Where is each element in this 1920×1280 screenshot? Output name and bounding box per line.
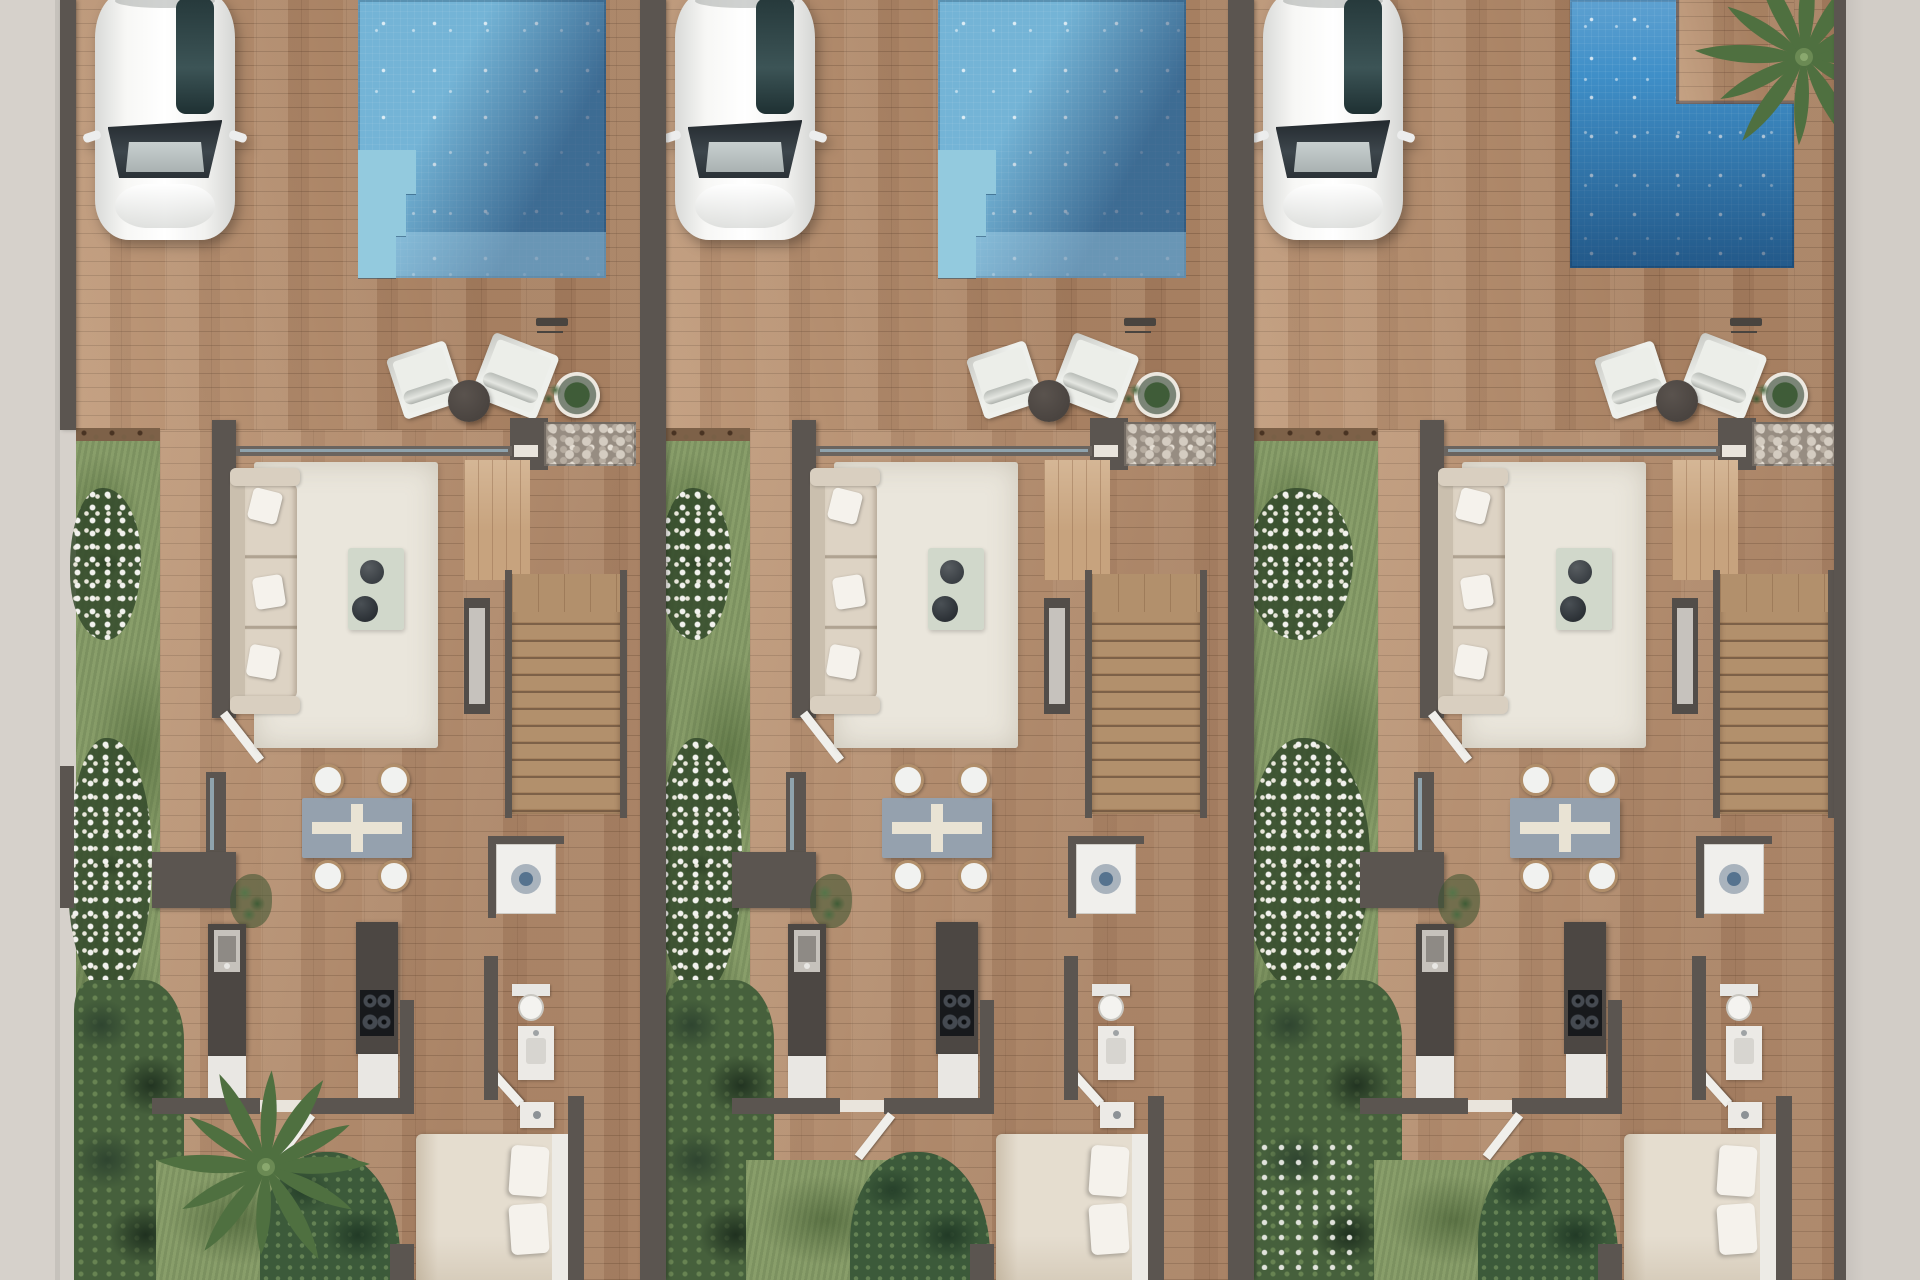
bedroom-side-wall bbox=[568, 1096, 584, 1280]
bedside-table bbox=[1100, 1102, 1134, 1128]
dining-chair bbox=[892, 860, 924, 892]
double-bed bbox=[1624, 1134, 1776, 1280]
kitchen-sink bbox=[214, 930, 240, 972]
bed-pillow bbox=[1088, 1145, 1129, 1198]
kitchen-wall bbox=[1360, 852, 1444, 908]
garden-window-post bbox=[1414, 772, 1434, 856]
unit-boundary-wall bbox=[60, 0, 76, 430]
decor-bowl bbox=[940, 560, 964, 584]
bedroom-wall bbox=[884, 1098, 980, 1114]
terrace-plant-pot bbox=[1134, 372, 1180, 418]
washbasin-vanity bbox=[1098, 1026, 1134, 1080]
entrance-gate-handle bbox=[536, 318, 568, 326]
dining-table bbox=[302, 798, 412, 858]
decor-bowl bbox=[360, 560, 384, 584]
street-sidewalk-right bbox=[1846, 0, 1920, 1280]
pool-step bbox=[938, 194, 986, 236]
bedroom-wall bbox=[1512, 1098, 1608, 1114]
pool-step bbox=[938, 150, 996, 194]
sofa-armrest bbox=[810, 468, 880, 486]
pool-step bbox=[358, 194, 406, 236]
coffee-table-tray bbox=[928, 548, 984, 630]
bedside-table bbox=[1728, 1102, 1762, 1128]
wall-stub bbox=[970, 1244, 994, 1280]
swimming-pool-l-shaped bbox=[1570, 0, 1794, 268]
cooktop-hob bbox=[360, 990, 394, 1036]
car-dashboard bbox=[706, 142, 784, 172]
flower-cluster-lower bbox=[68, 738, 152, 994]
palm-tree-icon bbox=[76, 1052, 456, 1280]
bed-headboard-bench bbox=[1132, 1134, 1148, 1280]
washing-machine bbox=[496, 844, 556, 914]
dining-chair bbox=[958, 764, 990, 796]
sofa-armrest bbox=[1438, 696, 1508, 714]
entrance-gate-handle bbox=[1730, 318, 1762, 326]
boundary-wall-right bbox=[1834, 0, 1846, 1280]
utility-wall bbox=[488, 836, 496, 918]
sofa bbox=[1438, 468, 1510, 714]
tv-console bbox=[464, 598, 490, 714]
indoor-plant bbox=[810, 874, 852, 928]
cooktop-hob bbox=[1568, 990, 1602, 1036]
toilet bbox=[1092, 984, 1130, 1022]
bed-pillow bbox=[1088, 1203, 1129, 1256]
dining-table bbox=[1510, 798, 1620, 858]
pool-palm-planter bbox=[1676, 0, 1794, 104]
car-roof-glass bbox=[756, 0, 794, 114]
swimming-pool bbox=[938, 0, 1186, 278]
staircase bbox=[1720, 574, 1828, 814]
sliding-glass-door bbox=[236, 446, 512, 456]
terrace-side-table bbox=[1028, 380, 1070, 422]
washing-machine bbox=[1076, 844, 1136, 914]
washing-machine bbox=[1704, 844, 1764, 914]
car-roof-glass bbox=[176, 0, 214, 114]
washbasin-vanity bbox=[518, 1026, 554, 1080]
wall-stub bbox=[1598, 1244, 1622, 1280]
sofa-pillow bbox=[252, 574, 287, 610]
unit-boundary-wall bbox=[640, 0, 666, 1280]
sofa-pillow bbox=[1453, 644, 1488, 681]
garden-soil-edge bbox=[1254, 428, 1378, 441]
kitchen-cabinet bbox=[938, 1054, 978, 1100]
utility-wall bbox=[1696, 836, 1772, 844]
pool-step bbox=[358, 150, 416, 194]
garden-privacy-wall bbox=[60, 766, 74, 908]
kitchen-wall bbox=[152, 852, 236, 908]
sofa-pillow bbox=[245, 644, 280, 681]
utility-wall bbox=[1696, 836, 1704, 918]
kitchen-cabinet bbox=[1416, 1056, 1454, 1100]
cooktop-hob bbox=[940, 990, 974, 1036]
corridor-wall bbox=[1608, 1000, 1622, 1114]
bedroom-wall bbox=[732, 1098, 840, 1114]
utility-wall bbox=[488, 836, 564, 844]
bathroom-wall bbox=[1692, 956, 1706, 1100]
dining-chair bbox=[312, 764, 344, 796]
pebble-planter bbox=[544, 422, 636, 466]
toilet-bowl bbox=[1726, 994, 1752, 1021]
swimming-pool bbox=[358, 0, 606, 278]
dining-chair bbox=[1520, 764, 1552, 796]
dining-chair bbox=[312, 860, 344, 892]
tv-console bbox=[1044, 598, 1070, 714]
bed-headboard-bench bbox=[1760, 1134, 1776, 1280]
terrace-plant-pot bbox=[554, 372, 600, 418]
toilet-bowl bbox=[518, 994, 544, 1021]
dining-chair bbox=[1520, 860, 1552, 892]
staircase bbox=[1092, 574, 1200, 814]
bed-headboard-bench bbox=[552, 1134, 568, 1280]
door-threshold bbox=[1468, 1100, 1512, 1112]
bed-pillow bbox=[1716, 1145, 1757, 1198]
dining-chair bbox=[1586, 764, 1618, 796]
unit-boundary-wall bbox=[1228, 0, 1254, 1280]
entrance-gate-handle bbox=[1124, 318, 1156, 326]
terrace-side-table bbox=[1656, 380, 1698, 422]
pebble-planter bbox=[1124, 422, 1216, 466]
parked-white-car bbox=[95, 0, 235, 240]
double-bed bbox=[996, 1134, 1148, 1280]
entry-hall-floor bbox=[464, 460, 530, 580]
bedroom-side-wall bbox=[1148, 1096, 1164, 1280]
shrub-flowers bbox=[1256, 1140, 1355, 1270]
corridor-wall bbox=[980, 1000, 994, 1114]
sofa bbox=[810, 468, 882, 714]
kitchen-wall bbox=[732, 852, 816, 908]
sliding-glass-door bbox=[816, 446, 1092, 456]
car-dashboard bbox=[1294, 142, 1372, 172]
decor-bowl bbox=[1568, 560, 1592, 584]
indoor-plant bbox=[1438, 874, 1480, 928]
sofa bbox=[230, 468, 302, 714]
terrace-plant-pot bbox=[1762, 372, 1808, 418]
sofa-armrest bbox=[810, 696, 880, 714]
aerial-villa-floorplan-render: Aerial top-down 3D architectural render … bbox=[0, 0, 1920, 1280]
entry-hall-floor bbox=[1672, 460, 1738, 580]
bed-pillow bbox=[1716, 1203, 1757, 1256]
tv-console bbox=[1672, 598, 1698, 714]
toilet-bowl bbox=[1098, 994, 1124, 1021]
coffee-table-tray bbox=[1556, 548, 1612, 630]
unit-3 bbox=[1228, 0, 1834, 1280]
pool-step bbox=[938, 236, 976, 278]
dining-chair bbox=[892, 764, 924, 796]
villa-units-row bbox=[0, 0, 1920, 1280]
sofa-pillow bbox=[1460, 574, 1495, 610]
bathroom-wall bbox=[1064, 956, 1078, 1100]
kitchen-sink bbox=[1422, 930, 1448, 972]
terrace-side-table bbox=[448, 380, 490, 422]
entry-hall-floor bbox=[1044, 460, 1110, 580]
door-threshold bbox=[840, 1100, 884, 1112]
bathroom-wall bbox=[484, 956, 498, 1100]
utility-wall bbox=[1068, 836, 1076, 918]
parked-white-car bbox=[675, 0, 815, 240]
washbasin-vanity bbox=[1726, 1026, 1762, 1080]
dining-chair bbox=[378, 764, 410, 796]
kitchen-cabinet bbox=[788, 1056, 826, 1100]
kitchen-sink bbox=[794, 930, 820, 972]
flower-cluster-lower bbox=[1246, 738, 1370, 994]
toilet bbox=[1720, 984, 1758, 1022]
car-dashboard bbox=[126, 142, 204, 172]
decor-bowl bbox=[352, 596, 378, 622]
sofa-pillow bbox=[832, 574, 867, 610]
dining-chair bbox=[378, 860, 410, 892]
sofa-armrest bbox=[230, 696, 300, 714]
garden-soil-edge bbox=[76, 428, 160, 441]
unit-2 bbox=[640, 0, 1228, 1280]
car-roof-glass bbox=[1344, 0, 1382, 114]
car-hood bbox=[115, 184, 216, 228]
toilet bbox=[512, 984, 550, 1022]
coffee-table-tray bbox=[348, 548, 404, 630]
utility-wall bbox=[1068, 836, 1144, 844]
bed-pillow bbox=[508, 1145, 549, 1198]
car-hood bbox=[1283, 184, 1384, 228]
pool-step bbox=[358, 236, 396, 278]
garden-window-post bbox=[206, 772, 226, 856]
flower-cluster-lower bbox=[658, 738, 742, 994]
staircase bbox=[512, 574, 620, 814]
dining-chair bbox=[1586, 860, 1618, 892]
sliding-glass-door bbox=[1444, 446, 1720, 456]
parked-white-car bbox=[1263, 0, 1403, 240]
sofa-backrest bbox=[810, 468, 825, 714]
dining-chair bbox=[958, 860, 990, 892]
car-hood bbox=[695, 184, 796, 228]
bedroom-side-wall bbox=[1776, 1096, 1792, 1280]
dining-table bbox=[882, 798, 992, 858]
sofa-armrest bbox=[1438, 468, 1508, 486]
decor-bowl bbox=[932, 596, 958, 622]
sofa-pillow bbox=[825, 644, 860, 681]
bedroom-wall bbox=[1360, 1098, 1468, 1114]
garden-soil-edge bbox=[666, 428, 750, 441]
pebble-planter bbox=[1752, 422, 1844, 466]
sofa-backrest bbox=[230, 468, 245, 714]
indoor-plant bbox=[230, 874, 272, 928]
decor-bowl bbox=[1560, 596, 1586, 622]
bed-pillow bbox=[508, 1203, 549, 1256]
garden-window-post bbox=[786, 772, 806, 856]
kitchen-cabinet bbox=[1566, 1054, 1606, 1100]
sofa-backrest bbox=[1438, 468, 1453, 714]
bedside-table bbox=[520, 1102, 554, 1128]
unit-1 bbox=[60, 0, 640, 1280]
sofa-armrest bbox=[230, 468, 300, 486]
